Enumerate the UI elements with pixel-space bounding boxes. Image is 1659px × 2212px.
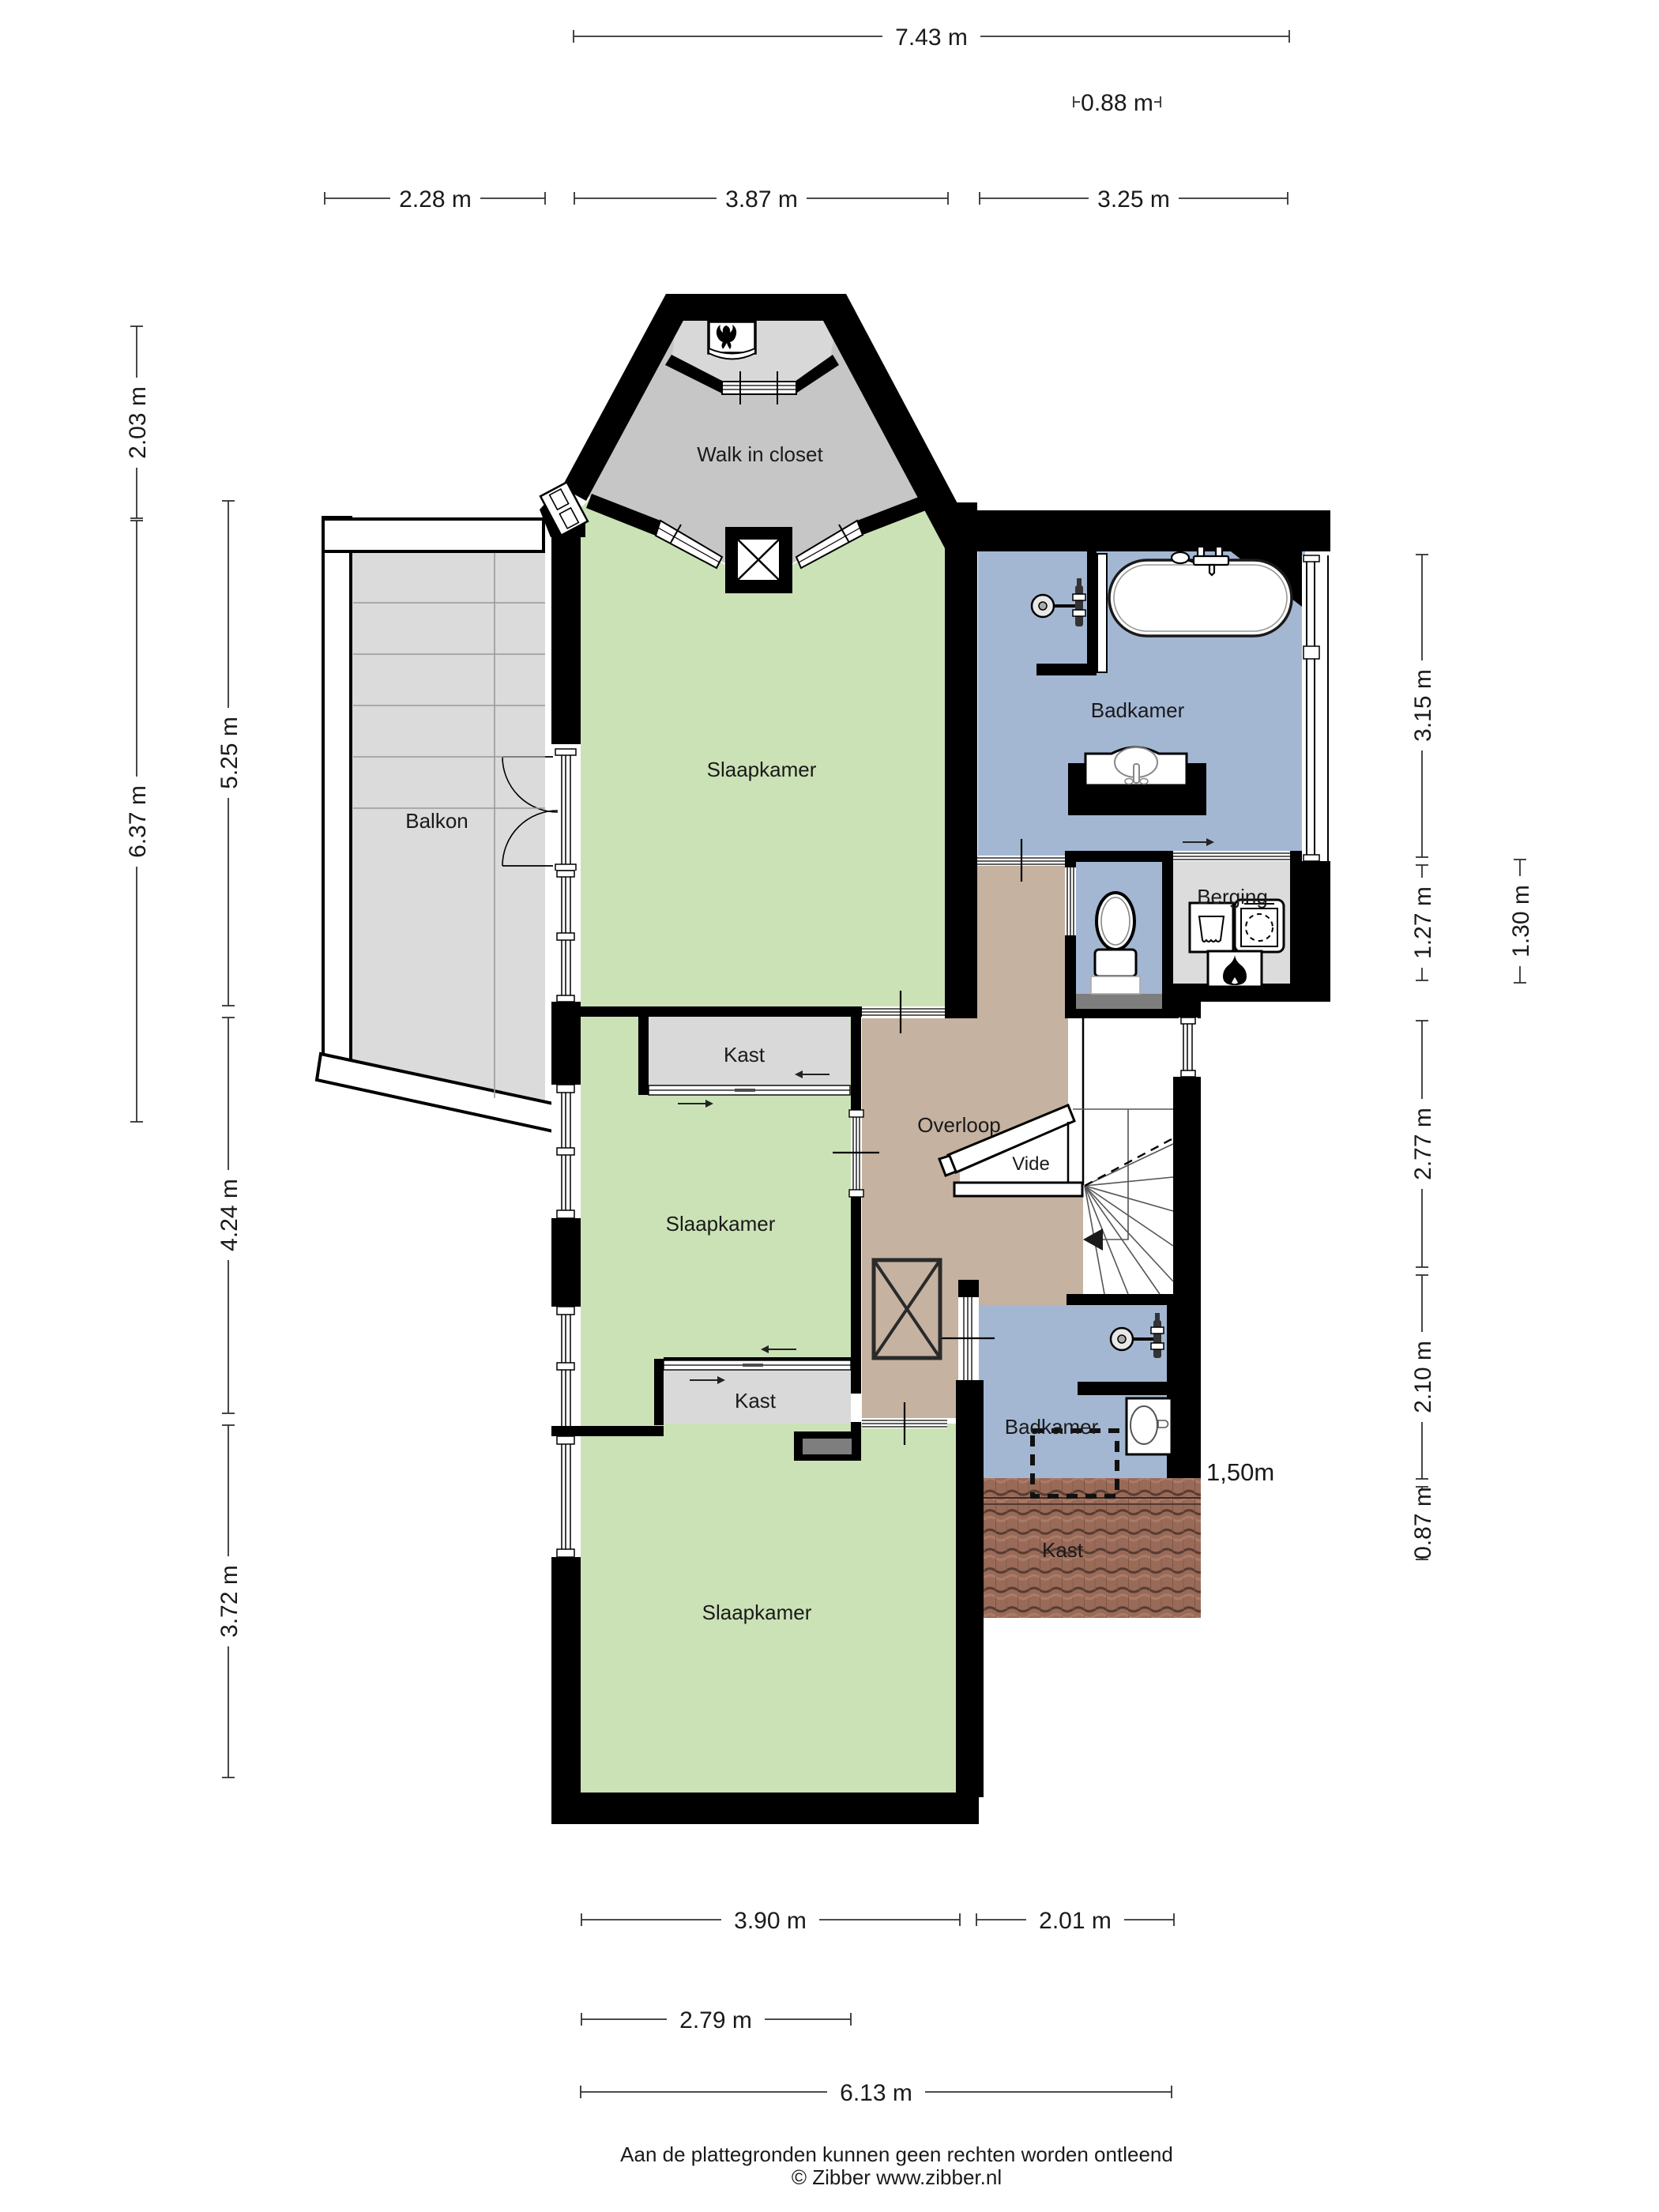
- svg-text:3.87 m: 3.87 m: [725, 186, 798, 213]
- svg-text:2.03 m: 2.03 m: [125, 386, 151, 459]
- svg-text:Balkon: Balkon: [405, 809, 468, 833]
- svg-text:Vide: Vide: [1012, 1153, 1050, 1175]
- svg-text:3.15 m: 3.15 m: [1410, 669, 1436, 742]
- svg-text:2.10 m: 2.10 m: [1410, 1341, 1436, 1413]
- svg-text:Walk in closet: Walk in closet: [697, 442, 823, 466]
- svg-text:Berging: Berging: [1197, 885, 1268, 908]
- svg-text:Slaapkamer: Slaapkamer: [666, 1212, 776, 1236]
- svg-text:Aan de plattegronden kunnen ge: Aan de plattegronden kunnen geen rechten…: [620, 2142, 1173, 2166]
- svg-text:2.01 m: 2.01 m: [1039, 1908, 1112, 1934]
- svg-text:1.27 m: 1.27 m: [1410, 886, 1436, 959]
- svg-text:0.87 m: 0.87 m: [1410, 1487, 1436, 1559]
- svg-text:Kast: Kast: [735, 1389, 777, 1413]
- svg-text:Overloop: Overloop: [917, 1113, 1001, 1137]
- svg-text:5.25 m: 5.25 m: [216, 717, 243, 789]
- svg-text:6.37 m: 6.37 m: [125, 785, 151, 858]
- svg-text:4.24 m: 4.24 m: [216, 1179, 243, 1251]
- svg-text:Kast: Kast: [724, 1043, 766, 1066]
- svg-text:2.79 m: 2.79 m: [679, 2007, 752, 2033]
- svg-text:Badkamer: Badkamer: [1005, 1415, 1099, 1439]
- svg-text:© Zibber www.zibber.nl: © Zibber www.zibber.nl: [792, 2165, 1002, 2189]
- svg-text:6.13 m: 6.13 m: [840, 2080, 912, 2106]
- svg-text:3.72 m: 3.72 m: [216, 1565, 243, 1638]
- svg-text:2.28 m: 2.28 m: [399, 186, 472, 213]
- svg-text:1,50m: 1,50m: [1206, 1458, 1274, 1486]
- svg-text:Kast: Kast: [1042, 1538, 1084, 1562]
- svg-text:Slaapkamer: Slaapkamer: [702, 1601, 812, 1624]
- svg-text:1.30 m: 1.30 m: [1508, 885, 1534, 957]
- svg-text:Badkamer: Badkamer: [1091, 698, 1185, 722]
- svg-text:3.90 m: 3.90 m: [734, 1908, 807, 1934]
- svg-text:7.43 m: 7.43 m: [895, 24, 968, 51]
- svg-text:Slaapkamer: Slaapkamer: [707, 758, 817, 781]
- svg-text:0.88 m: 0.88 m: [1081, 90, 1153, 116]
- svg-text:2.77 m: 2.77 m: [1410, 1108, 1436, 1180]
- svg-text:3.25 m: 3.25 m: [1097, 186, 1170, 213]
